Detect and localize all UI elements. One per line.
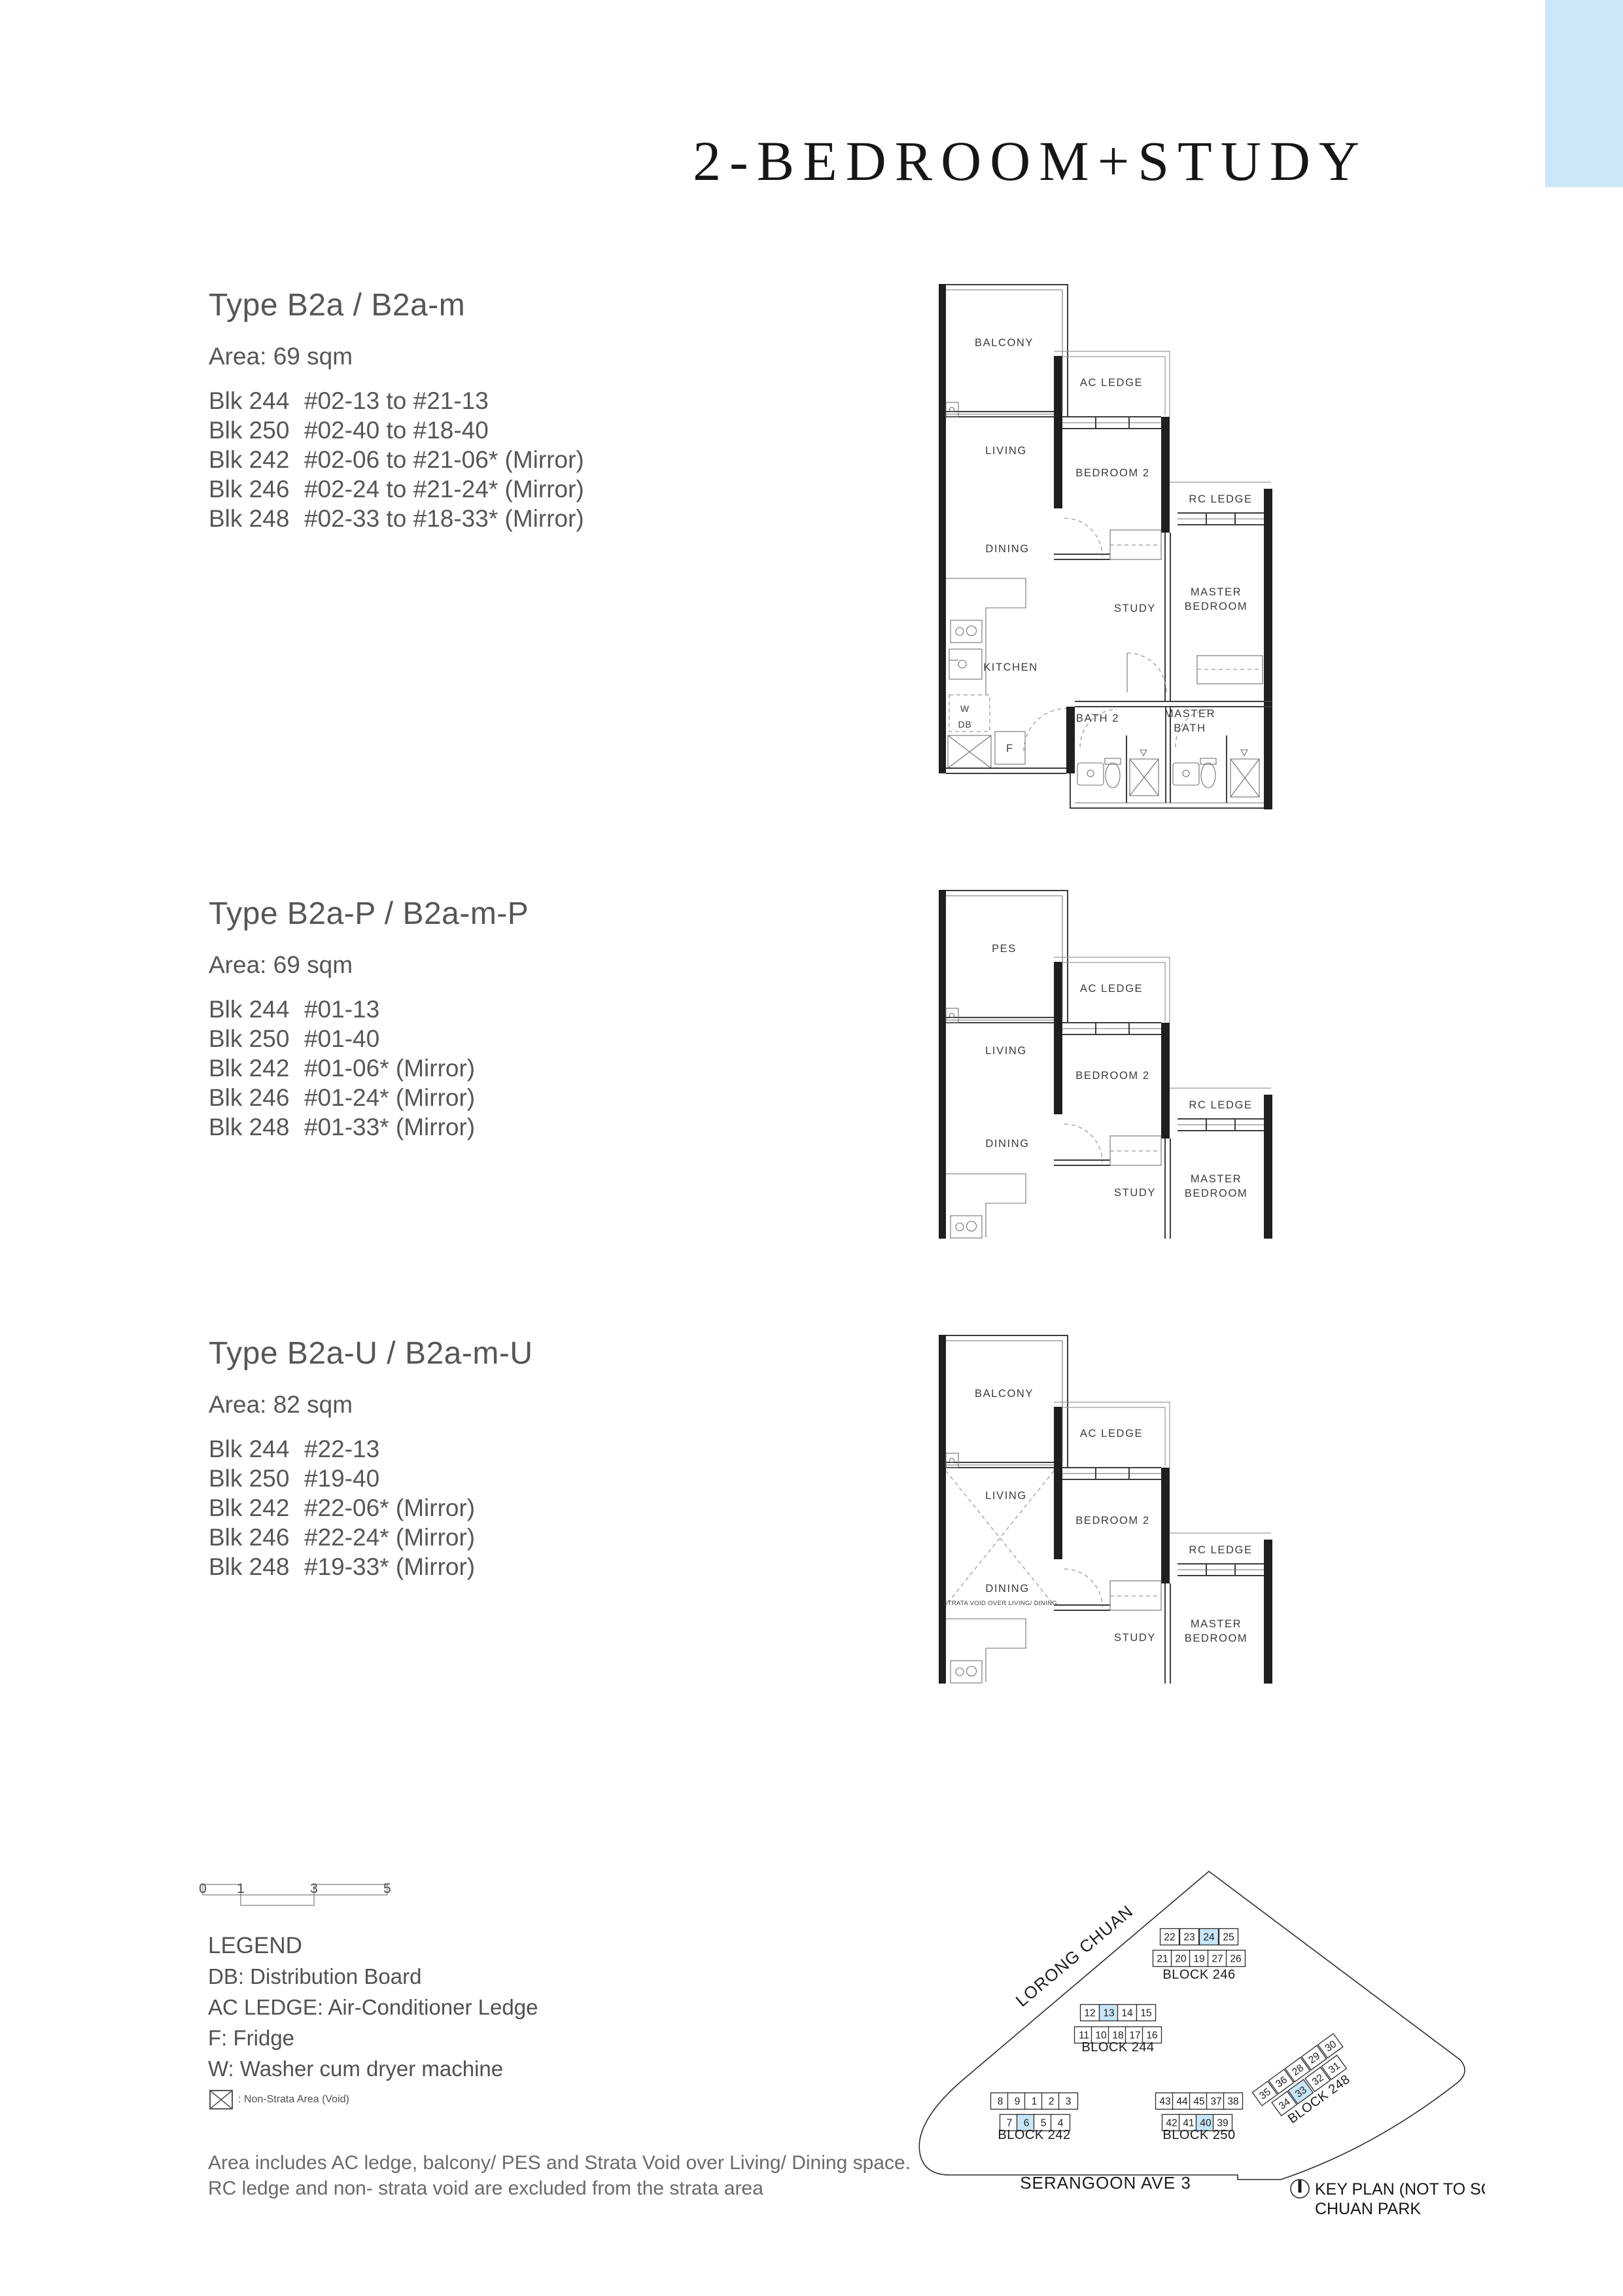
floorplan-type-b2a-u: BALCONYAC LEDGELIVINGBEDROOM 2RC LEDGEDI… [939, 1333, 1272, 1687]
type-title: Type B2a-P / B2a-m-P [209, 896, 797, 932]
keyplan-block: 222324252120192726BLOCK 246 [1153, 1929, 1246, 1983]
unit-block: Blk 250 [209, 1464, 304, 1493]
type-title: Type B2a-U / B2a-m-U [209, 1336, 797, 1371]
key-plan: LORONG CHUANSERANGOON AVE 32223242521201… [870, 1850, 1485, 2240]
keyplan-unit-number: 43 [1159, 2096, 1170, 2108]
unit-row: Blk 248 #02-33 to #18-33* (Mirror) [209, 504, 797, 533]
area-label: Area: 69 sqm [209, 343, 797, 370]
road-label-serangoon-ave-3: SERANGOON AVE 3 [1020, 2173, 1191, 2193]
footnote-line: Area includes AC ledge, balcony/ PES and… [208, 2150, 911, 2176]
keyplan-unit-number: 9 [1015, 2096, 1021, 2108]
keyplan-unit-number: 26 [1230, 1954, 1241, 1965]
room-label-bedroom2: BEDROOM 2 [1075, 1070, 1149, 1082]
keyplan-block-label: BLOCK 246 [1162, 1968, 1235, 1982]
keyplan-unit-number: 45 [1193, 2096, 1204, 2108]
keyplan-unit-number: 22 [1164, 1932, 1175, 1943]
floorplan-b2a-graphic: BALCONYAC LEDGELIVINGBEDROOM 2RC LEDGEDI… [939, 283, 1272, 809]
unit-block: Blk 242 [209, 1493, 304, 1523]
unit-block: Blk 250 [209, 1024, 304, 1053]
keyplan-unit-number: 15 [1140, 2008, 1151, 2019]
room-label-master_line1: MASTER [1191, 586, 1242, 598]
room-label-master_line2: BEDROOM [1185, 601, 1248, 612]
unit-row: Blk 248 #01-33* (Mirror) [209, 1112, 797, 1142]
keyplan-unit-number: 1 [1032, 2096, 1038, 2108]
scale-tick: 3 [310, 1881, 318, 1896]
keyplan-unit-number: 7 [1007, 2118, 1013, 2129]
room-label-ac_ledge: AC LEDGE [1080, 1428, 1143, 1439]
unit-row: Blk 244 #22-13 [209, 1434, 797, 1464]
keyplan-unit-number: 19 [1193, 1954, 1204, 1965]
legend-entry: DB: Distribution Board [208, 1961, 538, 1992]
room-label-balcony: BALCONY [975, 1388, 1034, 1400]
room-label-pes: PES [992, 943, 1017, 955]
footnote: Area includes AC ledge, balcony/ PES and… [208, 2150, 911, 2201]
keyplan-block-label: BLOCK 242 [998, 2128, 1070, 2142]
unit-range: #22-13 [304, 1434, 379, 1464]
unit-range: #02-33 to #18-33* (Mirror) [304, 504, 584, 533]
unit-range: #22-24* (Mirror) [304, 1523, 475, 1552]
unit-row: Blk 250 #19-40 [209, 1464, 797, 1493]
keyplan-unit-number: 25 [1223, 1932, 1234, 1943]
keyplan-unit-number: 16 [1146, 2030, 1157, 2041]
keyplan-unit-number: 41 [1183, 2118, 1194, 2129]
unit-range: #02-13 to #21-13 [304, 386, 489, 415]
room-label-balcony: BALCONY [975, 337, 1034, 349]
unit-range: #02-40 to #18-40 [304, 415, 489, 445]
unit-range: #01-13 [304, 995, 379, 1024]
north-indicator-icon [1291, 2180, 1309, 2198]
room-label-bedroom2: BEDROOM 2 [1075, 467, 1149, 479]
scale-bar: 0 1 3 5 [196, 1875, 432, 1915]
keyplan-unit-number: 40 [1200, 2118, 1212, 2129]
keyplan-unit-number: 11 [1079, 2030, 1089, 2041]
legend-entry: F: Fridge [208, 2022, 538, 2053]
keyplan-unit-number: 8 [998, 2096, 1003, 2108]
unit-list: Blk 244 #22-13 Blk 250 #19-40 Blk 242 #2… [209, 1434, 797, 1581]
road-label-lorong-chuan: LORONG CHUAN [1012, 1901, 1137, 2011]
unit-row: Blk 244 #01-13 [209, 995, 797, 1024]
keyplan-unit-number: 44 [1176, 2096, 1188, 2108]
keyplan-unit-number: 13 [1103, 2008, 1114, 2019]
unit-block: Blk 244 [209, 386, 304, 415]
keyplan-title: KEY PLAN (NOT TO SCALE) [1315, 2180, 1485, 2199]
room-label-master_line1: MASTER [1191, 1618, 1242, 1630]
unit-block: Blk 248 [209, 1112, 304, 1142]
page-title: 2-BEDROOM+STUDY [648, 128, 1413, 194]
floorplan-type-b2a: BALCONYAC LEDGELIVINGBEDROOM 2RC LEDGEDI… [939, 283, 1272, 813]
keyplan-unit-number: 12 [1084, 2008, 1095, 2019]
unit-type-section-b2a: Type B2a / B2a-m Area: 69 sqm Blk 244 #0… [209, 288, 797, 533]
unit-block: Blk 244 [209, 1434, 304, 1464]
keyplan-unit-number: 42 [1166, 2118, 1177, 2129]
type-title: Type B2a / B2a-m [209, 288, 797, 323]
keyplan-unit-number: 14 [1121, 2008, 1133, 2019]
keyplan-unit-number: 21 [1157, 1954, 1168, 1965]
legend-void-label: : Non-Strata Area (Void) [238, 2094, 349, 2106]
room-label-rc_ledge: RC LEDGE [1189, 1544, 1252, 1556]
room-label-strata_void: STRATA VOID OVER LIVING/ DINING [943, 1600, 1057, 1607]
corner-accent [1545, 0, 1623, 187]
room-label-ac_ledge: AC LEDGE [1080, 983, 1143, 995]
legend-title: LEGEND [208, 1930, 538, 1961]
room-label-db: DB [958, 719, 971, 730]
room-label-bath2: BATH 2 [1076, 713, 1119, 724]
room-label-ac_ledge: AC LEDGE [1080, 377, 1143, 389]
footnote-line: RC ledge and non- strata void are exclud… [208, 2176, 911, 2201]
room-label-study: STUDY [1114, 1187, 1156, 1199]
room-label-study: STUDY [1114, 1632, 1156, 1644]
keyplan-unit-number: 37 [1210, 2096, 1221, 2108]
keyplan-block: 434445373842414039BLOCK 250 [1156, 2093, 1243, 2143]
room-label-master_bath_line2: BATH [1174, 722, 1206, 734]
unit-row: Blk 242 #22-06* (Mirror) [209, 1493, 797, 1523]
room-label-rc_ledge: RC LEDGE [1189, 1099, 1252, 1111]
keyplan-unit-number: 39 [1217, 2118, 1228, 2129]
scale-bar-graphic: 0 1 3 5 [196, 1875, 432, 1912]
unit-block: Blk 242 [209, 1053, 304, 1083]
unit-range: #19-33* (Mirror) [304, 1552, 475, 1581]
keyplan-unit-number: 4 [1058, 2118, 1064, 2129]
room-label-living: LIVING [985, 1490, 1027, 1502]
room-label-study: STUDY [1114, 603, 1156, 614]
keyplan-block: 353628293034333231BLOCK 248 [1252, 2034, 1364, 2134]
room-label-master_line2: BEDROOM [1185, 1633, 1248, 1644]
unit-block: Blk 242 [209, 445, 304, 474]
unit-block: Blk 248 [209, 1552, 304, 1581]
room-label-rc_ledge: RC LEDGE [1189, 493, 1252, 505]
unit-block: Blk 246 [209, 1523, 304, 1552]
keyplan-unit-number: 6 [1024, 2118, 1030, 2129]
unit-range: #02-06 to #21-06* (Mirror) [304, 445, 584, 474]
floorplan-b2a-u-graphic: BALCONYAC LEDGELIVINGBEDROOM 2RC LEDGEDI… [939, 1333, 1272, 1684]
keyplan-unit-number: 17 [1129, 2030, 1140, 2041]
keyplan-unit-number: 3 [1066, 2096, 1072, 2108]
scale-tick: 5 [383, 1881, 391, 1896]
floorplan-page: 2-BEDROOM+STUDY Type B2a / B2a-m Area: 6… [0, 0, 1623, 2296]
scale-tick: 0 [199, 1881, 207, 1896]
keyplan-unit-number: 23 [1183, 1932, 1195, 1943]
room-label-master_bath_line1: MASTER [1164, 708, 1215, 720]
legend-void-row: : Non-Strata Area (Void) [208, 2084, 538, 2115]
unit-row: Blk 250 #01-40 [209, 1024, 797, 1053]
room-label-dining: DINING [985, 1583, 1029, 1595]
unit-block: Blk 244 [209, 995, 304, 1024]
unit-row: Blk 250 #02-40 to #18-40 [209, 415, 797, 445]
unit-row: Blk 242 #01-06* (Mirror) [209, 1053, 797, 1083]
legend: LEGEND DB: Distribution BoardAC LEDGE: A… [208, 1930, 538, 2115]
keyplan-unit-number: 38 [1227, 2096, 1238, 2108]
legend-rows: DB: Distribution BoardAC LEDGE: Air-Cond… [208, 1961, 538, 2084]
floorplan-type-b2a-p: PESAC LEDGELIVINGBEDROOM 2RC LEDGEDINING… [939, 889, 1272, 1242]
unit-row: Blk 244 #02-13 to #21-13 [209, 386, 797, 415]
floorplan-b2a-p-graphic: PESAC LEDGELIVINGBEDROOM 2RC LEDGEDINING… [939, 889, 1272, 1239]
unit-block: Blk 246 [209, 1083, 304, 1112]
unit-row: Blk 246 #22-24* (Mirror) [209, 1523, 797, 1552]
legend-entry: AC LEDGE: Air-Conditioner Ledge [208, 1992, 538, 2022]
non-strata-void-icon [208, 2089, 234, 2111]
keyplan-unit-number: 27 [1212, 1954, 1223, 1965]
unit-type-section-b2a-p: Type B2a-P / B2a-m-P Area: 69 sqm Blk 24… [209, 896, 797, 1142]
area-label: Area: 69 sqm [209, 951, 797, 979]
room-label-living: LIVING [985, 1045, 1027, 1057]
keyplan-subtitle: CHUAN PARK [1315, 2200, 1421, 2218]
room-label-dining: DINING [985, 1138, 1029, 1150]
room-label-living: LIVING [985, 445, 1027, 457]
keyplan-block-label: BLOCK 250 [1162, 2128, 1235, 2142]
keyplan-unit-number: 10 [1095, 2030, 1107, 2041]
unit-range: #02-24 to #21-24* (Mirror) [304, 474, 584, 504]
unit-row: Blk 246 #01-24* (Mirror) [209, 1083, 797, 1112]
unit-row: Blk 246 #02-24 to #21-24* (Mirror) [209, 474, 797, 504]
unit-type-section-b2a-u: Type B2a-U / B2a-m-U Area: 82 sqm Blk 24… [209, 1336, 797, 1581]
keyplan-block: 121314151110181716BLOCK 244 [1075, 2005, 1162, 2055]
scale-tick: 1 [237, 1881, 245, 1896]
unit-range: #19-40 [304, 1464, 379, 1493]
unit-range: #01-33* (Mirror) [304, 1112, 475, 1142]
unit-list: Blk 244 #01-13 Blk 250 #01-40 Blk 242 #0… [209, 995, 797, 1142]
keyplan-unit-number: 24 [1203, 1932, 1215, 1943]
room-label-kitchen: KITCHEN [983, 662, 1038, 673]
keyplan-unit-number: 2 [1049, 2096, 1055, 2108]
unit-list: Blk 244 #02-13 to #21-13 Blk 250 #02-40 … [209, 386, 797, 533]
unit-range: #22-06* (Mirror) [304, 1493, 475, 1523]
keyplan-unit-number: 20 [1175, 1954, 1187, 1965]
legend-entry: W: Washer cum dryer machine [208, 2053, 538, 2084]
unit-block: Blk 246 [209, 474, 304, 504]
room-label-fridge: F [1006, 743, 1014, 754]
room-label-master_line2: BEDROOM [1185, 1188, 1248, 1199]
area-label: Area: 82 sqm [209, 1391, 797, 1419]
unit-block: Blk 250 [209, 415, 304, 445]
unit-range: #01-06* (Mirror) [304, 1053, 475, 1083]
room-label-bedroom2: BEDROOM 2 [1075, 1515, 1149, 1527]
keyplan-unit-number: 5 [1041, 2118, 1047, 2129]
unit-range: #01-40 [304, 1024, 379, 1053]
key-plan-graphic: LORONG CHUANSERANGOON AVE 32223242521201… [870, 1850, 1485, 2236]
keyplan-unit-number: 18 [1112, 2030, 1123, 2041]
room-label-master_line1: MASTER [1191, 1173, 1242, 1185]
room-label-dining: DINING [985, 543, 1029, 555]
room-label-washer: W [960, 703, 969, 714]
unit-row: Blk 248 #19-33* (Mirror) [209, 1552, 797, 1581]
unit-row: Blk 242 #02-06 to #21-06* (Mirror) [209, 445, 797, 474]
keyplan-block-label: BLOCK 244 [1081, 2040, 1154, 2055]
keyplan-block: 891237654BLOCK 242 [991, 2093, 1078, 2143]
unit-block: Blk 248 [209, 504, 304, 533]
unit-range: #01-24* (Mirror) [304, 1083, 475, 1112]
